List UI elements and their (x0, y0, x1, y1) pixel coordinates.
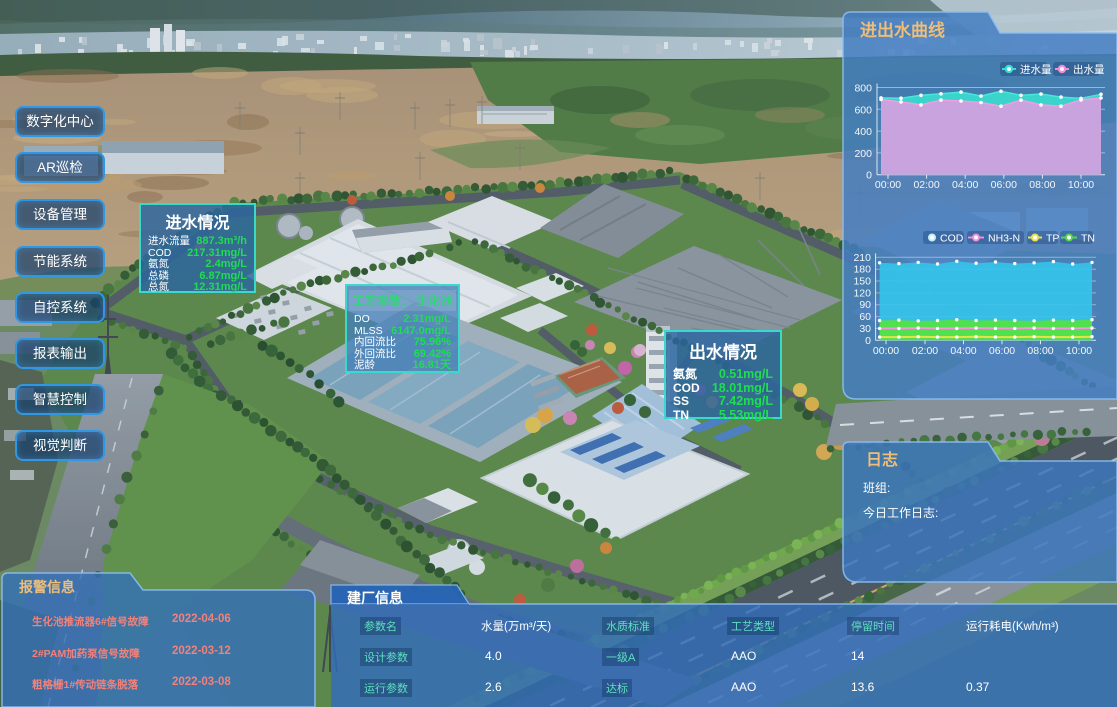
svg-text:02:00: 02:00 (913, 179, 939, 191)
svg-text:02:00: 02:00 (912, 345, 938, 357)
svg-text:200: 200 (854, 148, 872, 160)
svg-text:04:00: 04:00 (950, 345, 976, 357)
svg-text:180: 180 (853, 264, 871, 276)
svg-text:120: 120 (853, 287, 871, 299)
svg-text:08:00: 08:00 (1027, 345, 1053, 357)
svg-text:60: 60 (859, 311, 871, 323)
svg-text:06:00: 06:00 (989, 345, 1015, 357)
svg-text:0: 0 (866, 170, 872, 182)
svg-text:TP: TP (1046, 233, 1059, 245)
svg-text:NH3-N: NH3-N (988, 233, 1020, 245)
svg-text:400: 400 (854, 126, 872, 138)
svg-text:800: 800 (854, 83, 872, 95)
svg-text:210: 210 (853, 252, 871, 264)
svg-text:08:00: 08:00 (1029, 179, 1055, 191)
svg-text:600: 600 (854, 104, 872, 116)
svg-text:00:00: 00:00 (875, 179, 901, 191)
svg-text:COD: COD (940, 233, 964, 245)
svg-text:10:00: 10:00 (1066, 345, 1092, 357)
svg-text:进水量: 进水量 (1020, 64, 1052, 76)
svg-text:150: 150 (853, 276, 871, 288)
svg-text:30: 30 (859, 323, 871, 335)
svg-text:出水量: 出水量 (1073, 63, 1105, 76)
svg-text:90: 90 (859, 299, 871, 311)
svg-text:TN: TN (1081, 233, 1095, 245)
svg-text:00:00: 00:00 (873, 345, 899, 357)
svg-text:04:00: 04:00 (952, 179, 978, 191)
svg-text:0: 0 (865, 335, 871, 347)
svg-text:06:00: 06:00 (991, 179, 1017, 191)
svg-text:10:00: 10:00 (1068, 179, 1094, 191)
